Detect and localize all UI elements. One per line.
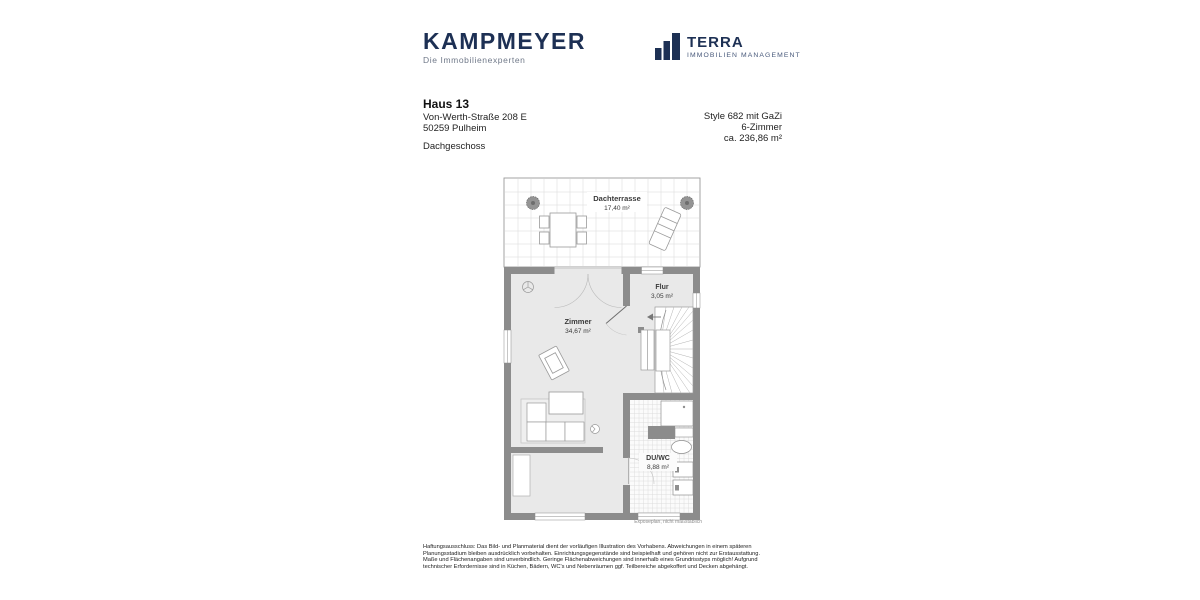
wardrobe	[641, 330, 654, 370]
sink	[672, 441, 692, 454]
roof-terrace: Dachterrasse 17,40 m²	[504, 178, 700, 267]
bath-niche	[675, 428, 693, 437]
spec-style: Style 682 mit GaZi	[582, 111, 782, 122]
built-in-closet	[513, 455, 530, 496]
kampmeyer-wordmark: KAMPMEYER	[423, 30, 586, 53]
floor-label: Dachgeschoss	[423, 141, 485, 152]
expose-page: KAMPMEYER Die Immobilienexperten TERRA I…	[0, 0, 1200, 600]
room-area-duwc: 8,88 m²	[647, 464, 670, 471]
plant-icon	[681, 197, 694, 210]
bidet	[673, 480, 693, 495]
room-label-terrace: Dachterrasse	[593, 194, 641, 203]
room-area-zimmer: 34,67 m²	[565, 328, 591, 335]
coffee-table	[549, 392, 583, 414]
room-label-zimmer: Zimmer	[564, 317, 591, 326]
floor-plant-icon	[591, 425, 600, 434]
terra-wordmark: TERRA	[687, 35, 801, 50]
stair-landing	[656, 330, 670, 371]
kampmeyer-logo: KAMPMEYER Die Immobilienexperten	[423, 30, 586, 65]
house-title: Haus 13	[423, 97, 469, 111]
room-label-duwc: DU/WC	[646, 455, 670, 462]
shower	[661, 401, 693, 426]
terra-logo: TERRA IMMOBILIEN MANAGEMENT	[655, 31, 801, 61]
disclaimer-text: Haftungsausschluss: Das Bild- und Planma…	[423, 544, 775, 570]
plan-caption: Exposeplan, nicht maßstäblich	[503, 519, 702, 525]
spec-rooms: 6-Zimmer	[582, 122, 782, 133]
room-area-terrace: 17,40 m²	[604, 205, 630, 212]
kampmeyer-tagline: Die Immobilienexperten	[423, 55, 586, 65]
plant-icon	[527, 197, 540, 210]
terra-tagline: IMMOBILIEN MANAGEMENT	[687, 52, 801, 59]
spec-area: ca. 236,86 m²	[582, 133, 782, 144]
room-area-flur: 3,05 m²	[651, 293, 674, 300]
floorplan-drawing: Dachterrasse 17,40 m²	[503, 177, 703, 522]
city-address: 50259 Pulheim	[423, 123, 486, 134]
terra-bars-icon	[655, 31, 681, 61]
room-label-flur: Flur	[655, 284, 668, 291]
street-address: Von-Werth-Straße 208 E	[423, 112, 527, 123]
spec-block: Style 682 mit GaZi 6-Zimmer ca. 236,86 m…	[582, 111, 782, 144]
